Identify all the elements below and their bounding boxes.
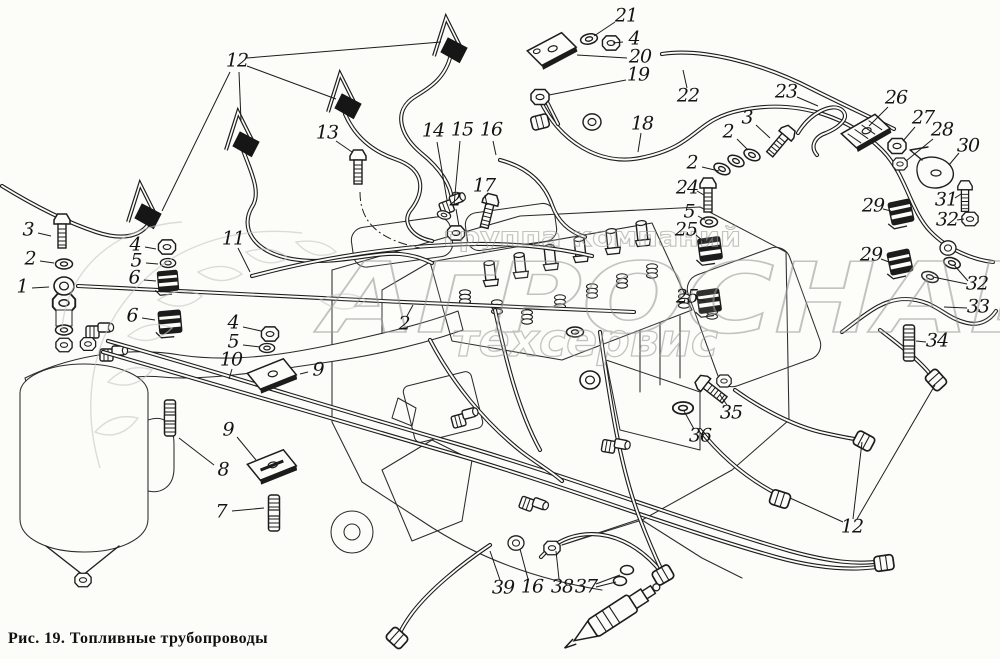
callout-9: 9: [312, 361, 323, 380]
callout-25: 25: [675, 221, 697, 240]
callout-2: 2: [398, 315, 409, 334]
callout-16: 16: [521, 578, 543, 597]
callout-35: 35: [720, 404, 742, 423]
figure-caption: Рис. 19. Топливные трубопроводы: [8, 630, 268, 648]
callout-28: 28: [931, 121, 953, 140]
callout-38: 38: [551, 578, 573, 597]
callout-6: 6: [128, 269, 139, 288]
callout-12: 12: [841, 518, 863, 537]
callout-32: 32: [936, 211, 958, 230]
callout-21: 21: [615, 7, 637, 26]
callout-29: 29: [862, 197, 884, 216]
callout-29: 29: [860, 246, 882, 265]
callout-24: 24: [676, 179, 698, 198]
callout-23: 23: [775, 83, 797, 102]
callout-36: 36: [689, 427, 711, 446]
callout-3: 3: [22, 221, 33, 240]
callout-16: 16: [480, 121, 502, 140]
callout-32: 32: [966, 275, 988, 294]
callout-9: 9: [222, 421, 233, 440]
callout-30: 30: [957, 137, 979, 156]
callout-2: 2: [449, 191, 460, 210]
callout-2: 2: [24, 250, 35, 269]
callout-3: 3: [741, 109, 752, 128]
callout-33: 33: [967, 298, 989, 317]
callout-22: 22: [677, 87, 699, 106]
callout-1: 1: [16, 278, 27, 297]
callout-31: 31: [935, 191, 957, 210]
figure-page: группа компаний АГРОСНАБ техсервис 21420…: [0, 0, 1000, 659]
callout-8: 8: [217, 461, 228, 480]
callout-6: 6: [126, 307, 137, 326]
callout-34: 34: [926, 332, 948, 351]
callout-15: 15: [451, 121, 473, 140]
callout-labels: 2142019221812131415161722326272830322245…: [0, 0, 1000, 659]
callout-17: 17: [473, 177, 495, 196]
callout-37: 37: [575, 578, 597, 597]
callout-2: 2: [686, 154, 697, 173]
callout-12: 12: [226, 52, 248, 71]
callout-13: 13: [316, 124, 338, 143]
callout-18: 18: [631, 115, 653, 134]
callout-2: 2: [722, 123, 733, 142]
callout-26: 26: [885, 89, 907, 108]
callout-25: 25: [676, 288, 698, 307]
callout-7: 7: [215, 503, 226, 522]
callout-10: 10: [220, 351, 242, 370]
callout-14: 14: [422, 122, 444, 141]
callout-39: 39: [492, 579, 514, 598]
callout-19: 19: [627, 66, 649, 85]
callout-11: 11: [222, 230, 244, 249]
